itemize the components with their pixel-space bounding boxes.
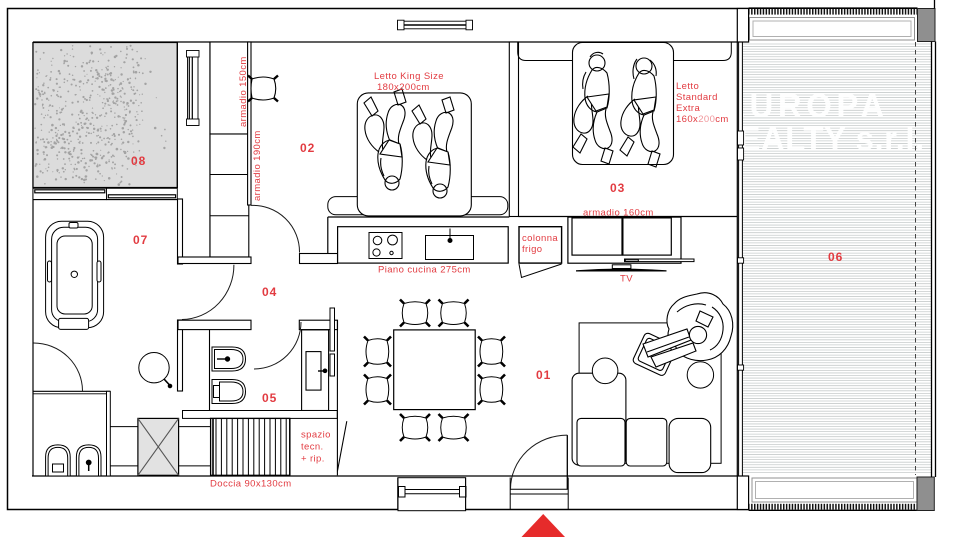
svg-text:04: 04 [262,285,277,299]
svg-text:02: 02 [300,141,315,155]
svg-text:tecn.: tecn. [301,442,324,453]
svg-text:03: 03 [610,181,625,195]
svg-text:180x200cm: 180x200cm [377,82,430,93]
svg-text:Doccia 90x130cm: Doccia 90x130cm [210,479,292,490]
svg-text:01: 01 [536,368,551,382]
svg-text:Letto: Letto [676,81,699,92]
svg-text:Extra: Extra [676,103,700,114]
svg-text:frigo: frigo [522,244,542,255]
svg-text:spazio: spazio [301,430,331,441]
svg-text:06: 06 [828,250,843,264]
svg-text:colonna: colonna [522,233,558,244]
svg-text:+ rip.: + rip. [301,454,325,465]
svg-text:05: 05 [262,391,277,405]
svg-text:Piano cucina 275cm: Piano cucina 275cm [378,265,471,276]
svg-text:Letto King Size: Letto King Size [374,71,444,82]
svg-text:armadio 160cm: armadio 160cm [583,208,654,219]
svg-text:armadio 190cm: armadio 190cm [252,130,263,201]
svg-text:Standard: Standard [676,92,718,103]
svg-text:160x200cm: 160x200cm [676,114,729,125]
svg-text:EUROPA: EUROPA [723,87,889,124]
svg-text:TV: TV [620,274,633,285]
svg-text:08: 08 [131,154,146,168]
svg-text:07: 07 [133,233,148,247]
svg-text:REALTY s.r.l.: REALTY s.r.l. [714,120,925,157]
